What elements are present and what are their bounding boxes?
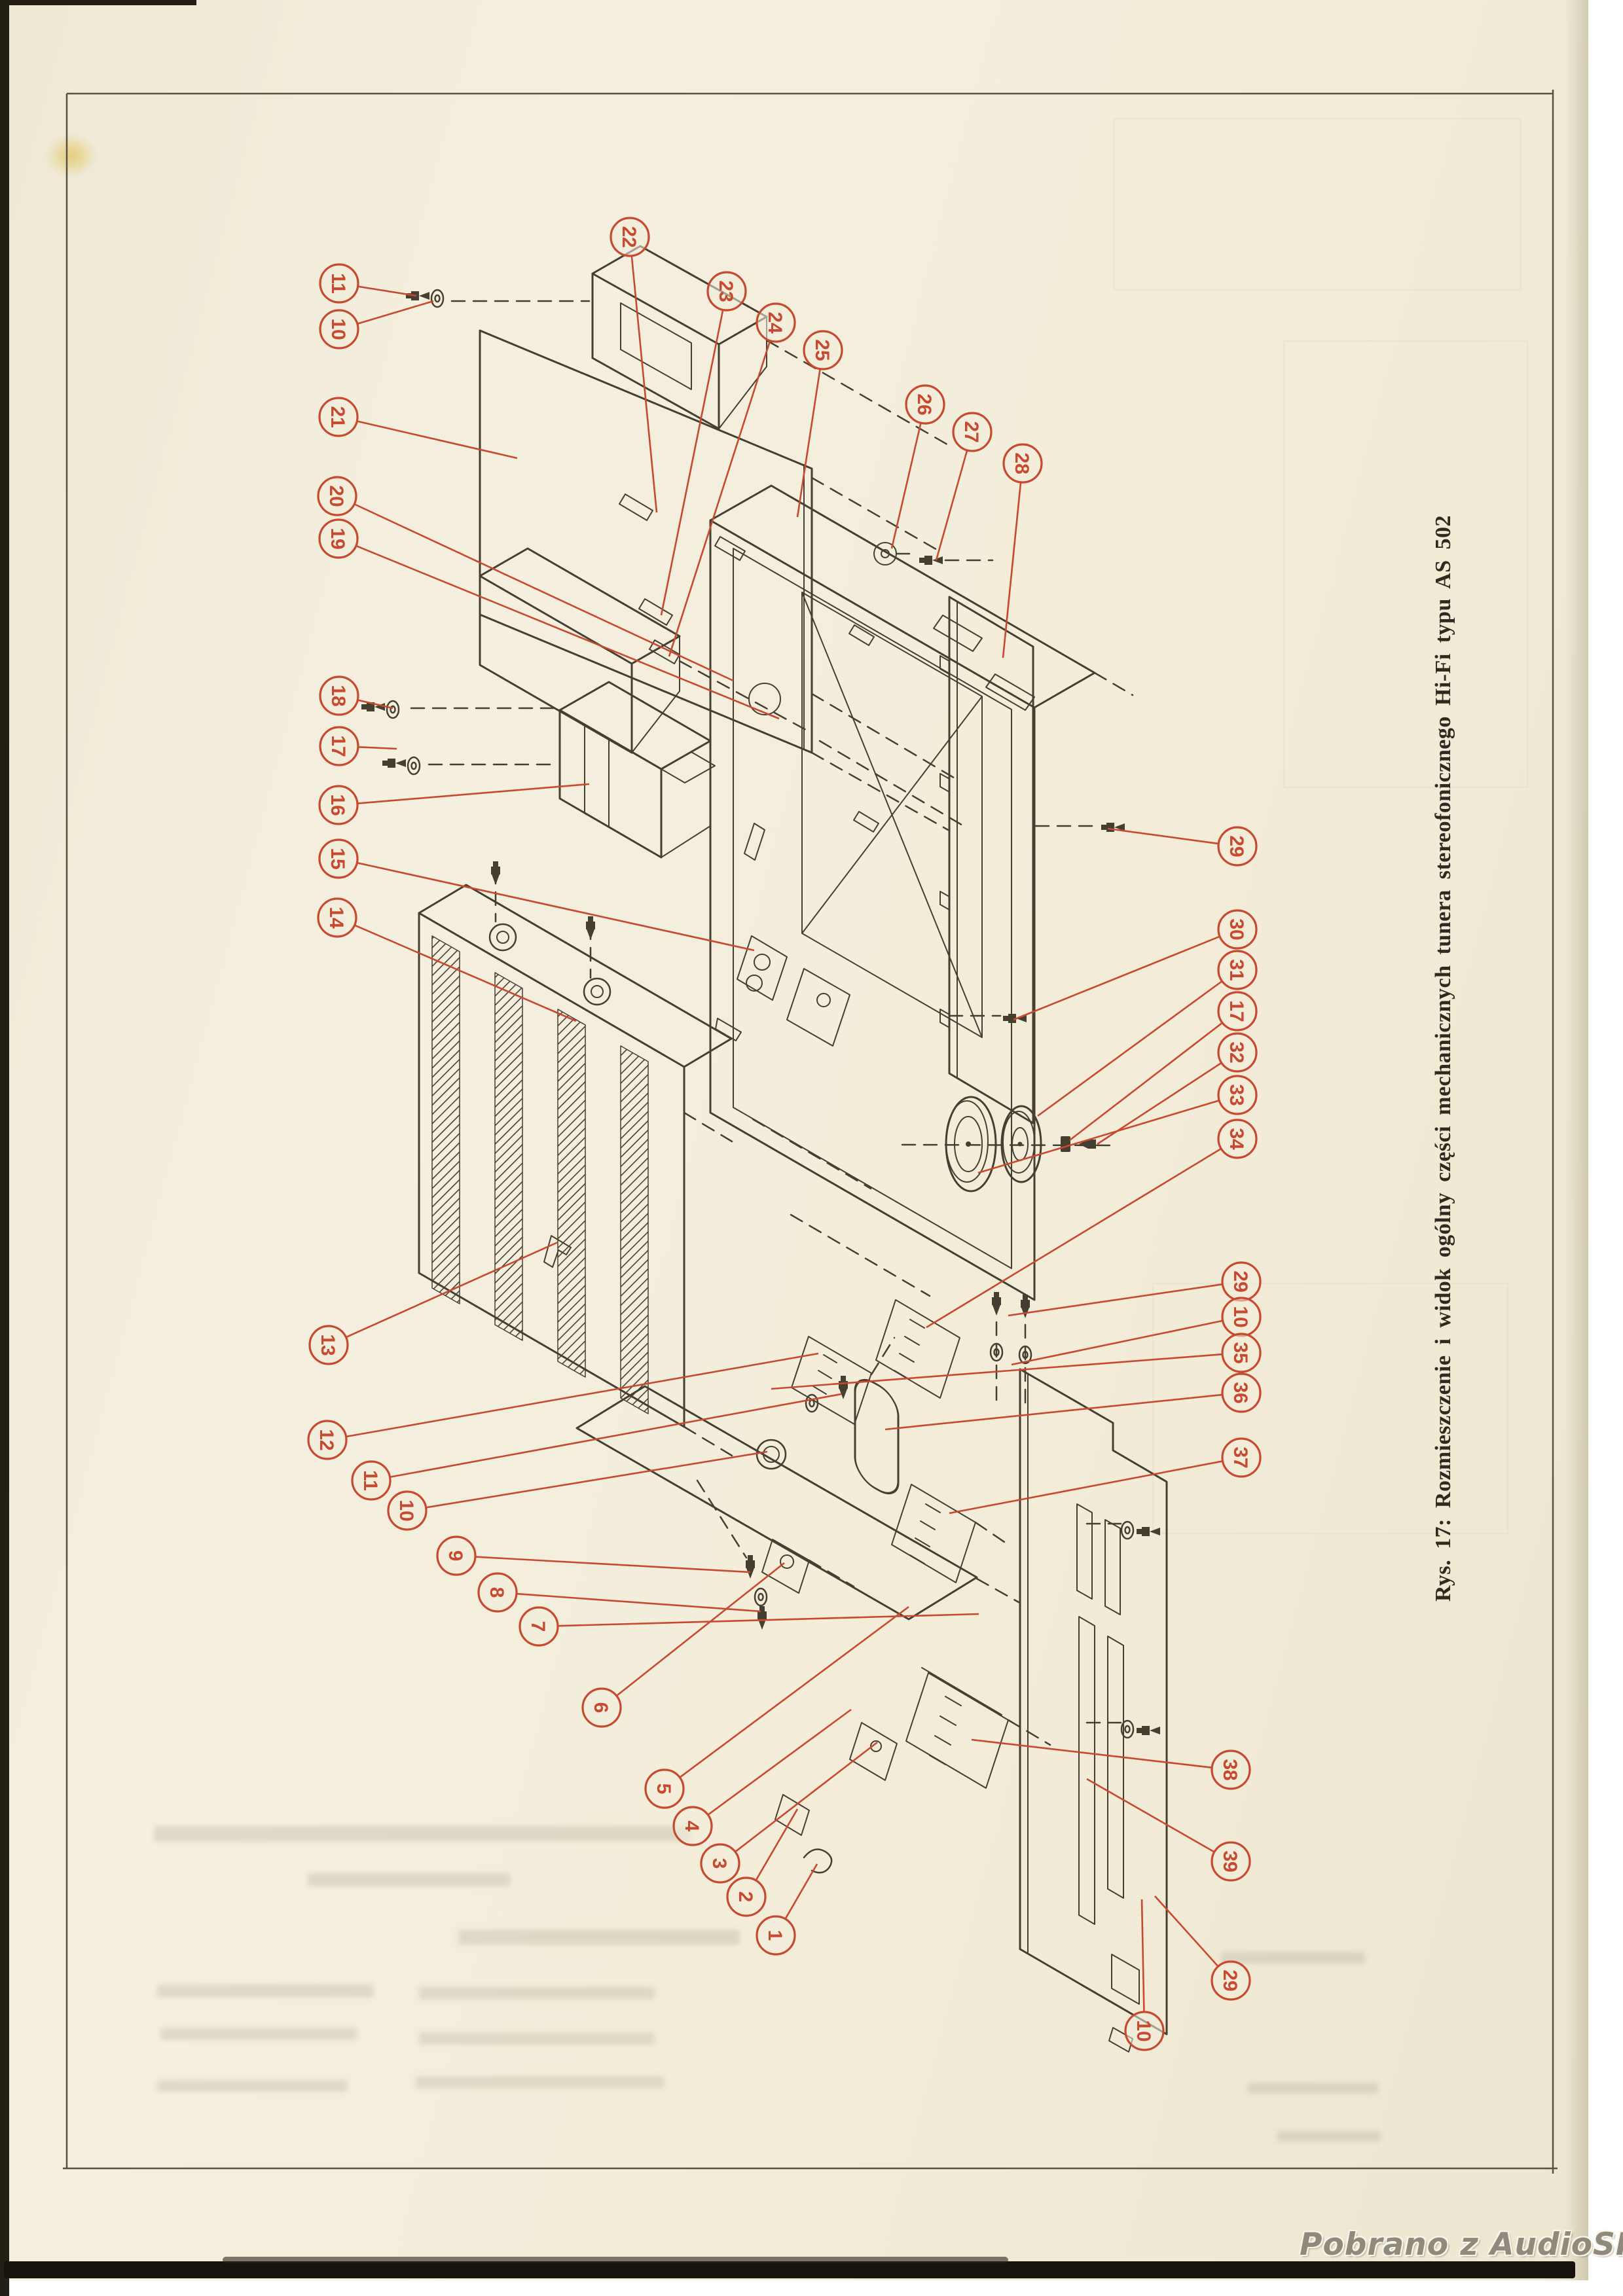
callout-number: 23 bbox=[715, 280, 737, 302]
callout-number: 20 bbox=[325, 485, 347, 507]
callout-leader-line bbox=[354, 504, 733, 681]
scan-edge-left bbox=[0, 0, 9, 2296]
callout-number: 10 bbox=[1133, 2020, 1154, 2041]
callout-leader-line bbox=[936, 450, 967, 560]
callout-number: 35 bbox=[1230, 1342, 1251, 1363]
callout-number: 26 bbox=[913, 393, 935, 415]
callout-leader-line bbox=[390, 1394, 841, 1477]
callout-leader-line bbox=[357, 784, 589, 804]
callout-29: 29 bbox=[1108, 827, 1256, 865]
callout-leader-line bbox=[357, 301, 433, 324]
callout-21: 21 bbox=[319, 398, 517, 458]
callout-leader-line bbox=[1008, 1284, 1222, 1316]
callout-leader-line bbox=[1155, 1896, 1218, 1966]
scan-edge-bottom-shadow bbox=[223, 2257, 1008, 2263]
callout-29: 29 bbox=[1008, 1263, 1260, 1316]
callout-number: 29 bbox=[1230, 1270, 1251, 1292]
callout-3: 3 bbox=[701, 1742, 877, 1882]
callout-number: 1 bbox=[764, 1930, 786, 1941]
callout-leader-line bbox=[426, 1452, 767, 1507]
callout-leader-line bbox=[1142, 1899, 1144, 2012]
callout-number: 4 bbox=[681, 1821, 702, 1832]
callout-leader-line bbox=[632, 256, 657, 512]
callout-number: 21 bbox=[327, 406, 348, 427]
exploded-diagram-canvas: 2223242526272811102120191817161514131211… bbox=[0, 0, 1623, 2296]
callout-26: 26 bbox=[892, 386, 944, 548]
callout-39: 39 bbox=[1087, 1779, 1250, 1880]
callout-number: 37 bbox=[1230, 1446, 1251, 1468]
callout-1: 1 bbox=[757, 1864, 817, 1954]
callout-leader-line bbox=[771, 1354, 1222, 1389]
callout-number: 22 bbox=[618, 226, 640, 247]
callout-10: 10 bbox=[320, 301, 433, 348]
callout-29: 29 bbox=[1155, 1896, 1250, 2000]
callout-leader-line bbox=[1012, 1321, 1223, 1365]
callout-leader-line bbox=[617, 1563, 784, 1696]
callout-number: 15 bbox=[327, 848, 348, 869]
callout-4: 4 bbox=[674, 1710, 851, 1845]
callout-leader-line bbox=[661, 310, 723, 615]
callout-10: 10 bbox=[1125, 1899, 1163, 2050]
callout-number: 31 bbox=[1226, 959, 1247, 980]
callout-number: 39 bbox=[1219, 1850, 1241, 1872]
callout-number: 13 bbox=[317, 1334, 338, 1355]
callout-leader-line bbox=[1013, 937, 1220, 1020]
callout-28: 28 bbox=[1003, 444, 1042, 658]
callout-leader-line bbox=[1087, 1779, 1214, 1852]
callout-number: 17 bbox=[1226, 1000, 1247, 1022]
callout-number: 38 bbox=[1219, 1759, 1241, 1780]
callout-number: 33 bbox=[1226, 1084, 1247, 1105]
exploded-drawing bbox=[361, 246, 1167, 2052]
callout-9: 9 bbox=[437, 1537, 750, 1575]
callout-number: 2 bbox=[735, 1892, 756, 1903]
callout-leader-line bbox=[558, 1614, 979, 1626]
callout-number: 30 bbox=[1226, 918, 1247, 940]
callout-number: 12 bbox=[316, 1429, 337, 1450]
callout-number: 11 bbox=[327, 273, 349, 294]
callout-leader-line bbox=[972, 1740, 1212, 1768]
callout-number: 8 bbox=[486, 1587, 507, 1598]
callout-6: 6 bbox=[583, 1563, 784, 1727]
callout-number: 36 bbox=[1230, 1382, 1251, 1403]
callout-leader-line bbox=[926, 1149, 1221, 1327]
watermark: Pobrano z AudioSPA.pl bbox=[1300, 2227, 1594, 2263]
callout-37: 37 bbox=[949, 1439, 1260, 1513]
callout-number: 25 bbox=[811, 339, 833, 361]
callout-number: 29 bbox=[1226, 835, 1247, 857]
callout-leader-line bbox=[1038, 981, 1222, 1116]
page-frame bbox=[63, 90, 1558, 2174]
callout-number: 28 bbox=[1011, 452, 1032, 474]
callout-number: 24 bbox=[764, 312, 786, 334]
callout-36: 36 bbox=[885, 1374, 1260, 1429]
callout-number: 16 bbox=[327, 794, 348, 816]
callout-number: 3 bbox=[708, 1858, 730, 1869]
callout-16: 16 bbox=[319, 784, 589, 824]
callout-27: 27 bbox=[936, 413, 991, 560]
callout-number: 10 bbox=[327, 318, 349, 340]
callout-leader-line bbox=[949, 1461, 1223, 1513]
callout-leader-line bbox=[357, 422, 517, 458]
callout-number: 32 bbox=[1226, 1041, 1247, 1063]
callout-10: 10 bbox=[388, 1452, 767, 1530]
callout-33: 33 bbox=[978, 1076, 1256, 1173]
callout-leader-line bbox=[517, 1594, 761, 1611]
callout-15: 15 bbox=[319, 840, 754, 950]
callout-leader-line bbox=[358, 287, 416, 296]
callout-number: 11 bbox=[359, 1470, 381, 1491]
callout-8: 8 bbox=[479, 1573, 761, 1611]
scanned-page: 2223242526272811102120191817161514131211… bbox=[0, 0, 1623, 2296]
callout-leader-line bbox=[1108, 829, 1218, 844]
callout-number: 10 bbox=[395, 1499, 417, 1521]
scan-edge-top bbox=[0, 0, 196, 5]
callout-leader-line bbox=[885, 1395, 1222, 1429]
callout-34: 34 bbox=[926, 1120, 1256, 1327]
callout-number: 17 bbox=[327, 735, 349, 757]
callout-number: 14 bbox=[325, 906, 347, 929]
callout-number: 6 bbox=[590, 1702, 611, 1713]
callout-7: 7 bbox=[520, 1607, 979, 1645]
callout-number: 10 bbox=[1230, 1306, 1251, 1327]
callout-leader-line bbox=[892, 423, 921, 548]
callout-number: 7 bbox=[527, 1621, 549, 1632]
callout-leader-line bbox=[735, 1742, 877, 1852]
callout-number: 19 bbox=[327, 528, 348, 549]
callout-leader-line bbox=[797, 369, 820, 517]
figure-caption: Rys. 17: Rozmieszczenie i widok ogólny c… bbox=[1431, 620, 1460, 1602]
callout-number: 9 bbox=[445, 1551, 466, 1562]
callout-leader-line bbox=[358, 747, 397, 749]
callout-number: 18 bbox=[327, 685, 349, 706]
callout-leader-line bbox=[708, 1710, 851, 1815]
callout-leader-line bbox=[1003, 482, 1021, 658]
callout-11: 11 bbox=[320, 264, 416, 302]
callout-leader-line bbox=[786, 1864, 817, 1919]
callout-number: 34 bbox=[1226, 1128, 1247, 1150]
callout-leader-line bbox=[475, 1557, 750, 1572]
callout-5: 5 bbox=[646, 1607, 909, 1808]
callout-number: 29 bbox=[1219, 1969, 1241, 1991]
callout-number: 27 bbox=[960, 421, 982, 442]
scan-edge-bottom bbox=[4, 2261, 1575, 2278]
callout-number: 5 bbox=[653, 1784, 674, 1795]
callout-17: 17 bbox=[320, 727, 397, 765]
callout-38: 38 bbox=[972, 1740, 1250, 1789]
